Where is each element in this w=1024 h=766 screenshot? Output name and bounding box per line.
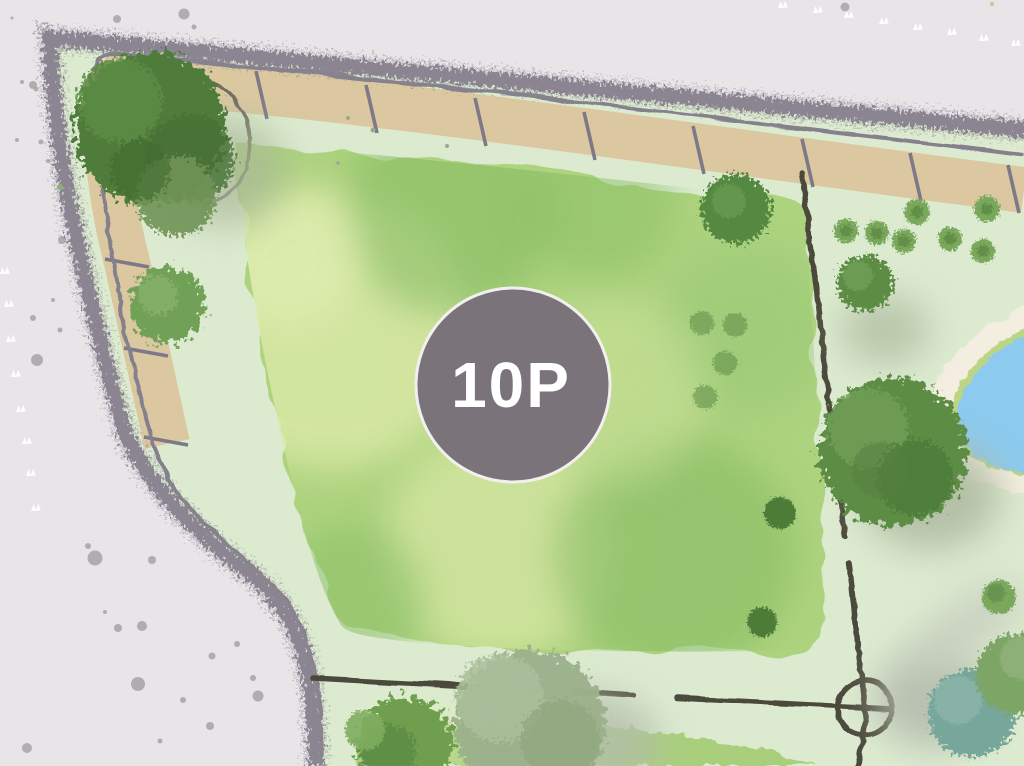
tree — [701, 174, 771, 244]
large-tree — [819, 378, 967, 526]
marker-label: 10P — [451, 349, 571, 421]
site-plan-map: 10P — [0, 0, 1024, 766]
tree — [837, 255, 893, 311]
tree — [129, 267, 205, 343]
parking-capacity-marker[interactable]: 10P — [416, 288, 610, 482]
bush — [982, 580, 1016, 614]
